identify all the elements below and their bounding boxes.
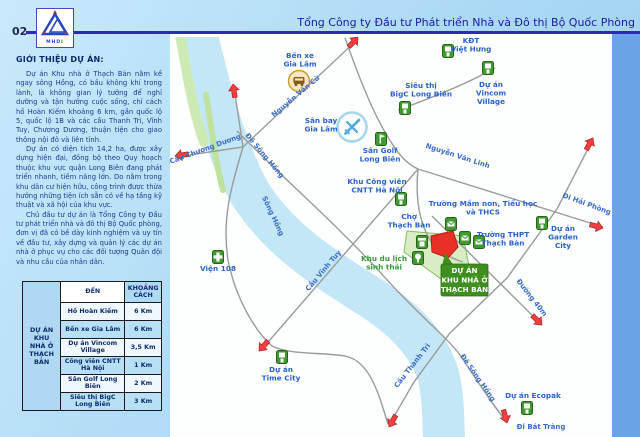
brochure-page: 02 MHDI Tổng Công ty Đầu tư Phát triển N… [0, 0, 640, 437]
label-di-hai-phong: Đi Hải Phòng [561, 192, 612, 217]
destination-cell: Sân Golf Long Biên [61, 374, 125, 392]
san-golf-icon [376, 133, 387, 146]
label-cho-thach-ban: ChợThạch Bàn [388, 212, 431, 230]
destination-cell: Hồ Hoàn Kiếm [61, 302, 125, 320]
right-decor-band [612, 34, 640, 437]
intro-heading: GIỚI THIỆU DỰ ÁN: [16, 55, 162, 64]
col-distance: KHOẢNG CÁCH [125, 281, 162, 302]
label-garden-city: Dự ánGardenCity [548, 224, 578, 250]
arrow-ring-road-north [582, 135, 598, 152]
distance-table: DỰ ÁN KHU NHÀ Ở THẠCH BÀNĐẾNKHOẢNG CÁCHH… [22, 281, 162, 411]
label-sieu-thi-bigc: Siêu thịBigC Long Biên [390, 81, 452, 99]
mhdi-logo-icon [38, 9, 72, 37]
label-khu-du-lich: Khu du lịchsinh thái [361, 254, 407, 272]
label-truong-thpt: Trường THPTThạch Bàn [477, 230, 529, 248]
label-duong-40m: Đường 40m [515, 278, 549, 318]
label-ecopak: Dự án Ecopak [505, 391, 561, 400]
khu-du-lich-icon [413, 252, 424, 265]
label-san-bay-gia-lam: Sân bayGia Lâm [304, 116, 338, 134]
ecopak-icon [522, 402, 533, 415]
label-kdt-viet-hung: KĐTViệt Hưng [451, 37, 492, 54]
col-destination: ĐẾN [61, 281, 125, 302]
label-vincom-village: Dự ánVincomVillage [476, 80, 507, 106]
label-vien-108: Viện 108 [200, 264, 236, 273]
intro-paragraph-3: Chủ đầu tư dự án là Tổng Công ty Đầu tư … [16, 211, 162, 267]
san-bay-gia-lam-icon [338, 113, 367, 142]
label-nguyen-van-linh: Nguyễn Văn Linh [425, 141, 491, 170]
intro-paragraph-1: Dự án Khu nhà ở Thạch Bàn nằm kề ngay sô… [16, 70, 162, 145]
destination-cell: Công viên CNTT Hà Nội [61, 356, 125, 374]
vien-108-icon [213, 251, 224, 264]
arrow-di-hai-phong [589, 219, 605, 233]
intro-panel: GIỚI THIỆU DỰ ÁN: Dự án Khu nhà ở Thạch … [0, 37, 170, 437]
label-san-golf: Sân GolfLong Biên [360, 146, 401, 164]
distance-table-body: DỰ ÁN KHU NHÀ Ở THẠCH BÀNĐẾNKHOẢNG CÁCHH… [23, 281, 162, 410]
destination-cell: Bến xe Gia Lâm [61, 320, 125, 338]
label-di-bat-trang: Đi Bát Tràng [517, 423, 566, 431]
distance-cell: 1 Km [125, 356, 162, 374]
destination-cell: Dự án Vincom Village [61, 338, 125, 356]
intro-paragraph-2: Dự án có diện tích 14,2 ha, được xây dựn… [16, 145, 162, 211]
garden-city-icon [537, 217, 548, 230]
destination-cell: Siêu thị BigC Long Biên [61, 392, 125, 410]
bigc-icon [400, 102, 411, 115]
distance-cell: 6 Km [125, 320, 162, 338]
time-city-icon [277, 351, 288, 364]
distance-cell: 6 Km [125, 302, 162, 320]
page-title: Tổng Công ty Đầu tư Phát triển Nhà và Đô… [297, 16, 635, 29]
cho-thach-ban-icon [417, 236, 428, 249]
tieu-hoc-icon [460, 232, 471, 245]
mam-non-icon [446, 218, 457, 231]
label-ben-xe-gia-lam: Bến xeGia Lâm [283, 51, 317, 69]
location-map: DỰ ÁNKHU NHÀ ỞTHẠCH BÀNCầu Chương DươngN… [170, 37, 612, 437]
project-cell: DỰ ÁN KHU NHÀ Ở THẠCH BÀN [23, 281, 61, 410]
label-time-city: Dự ánTime City [262, 365, 301, 383]
distance-cell: 3,5 Km [125, 338, 162, 356]
vincom-village-icon [483, 62, 494, 75]
distance-cell: 2 Km [125, 374, 162, 392]
label-truong-mam-non: Trường Mầm non, Tiểu họcvà THCS [429, 199, 538, 217]
arrow-di-bat-trang [498, 409, 512, 425]
label-de-song-hong-bottom: Đê Sông Hồng [458, 353, 497, 403]
label-cong-vien-cntt: Khu Công viênCNTT Hà Nội [347, 177, 406, 195]
distance-cell: 3 Km [125, 392, 162, 410]
